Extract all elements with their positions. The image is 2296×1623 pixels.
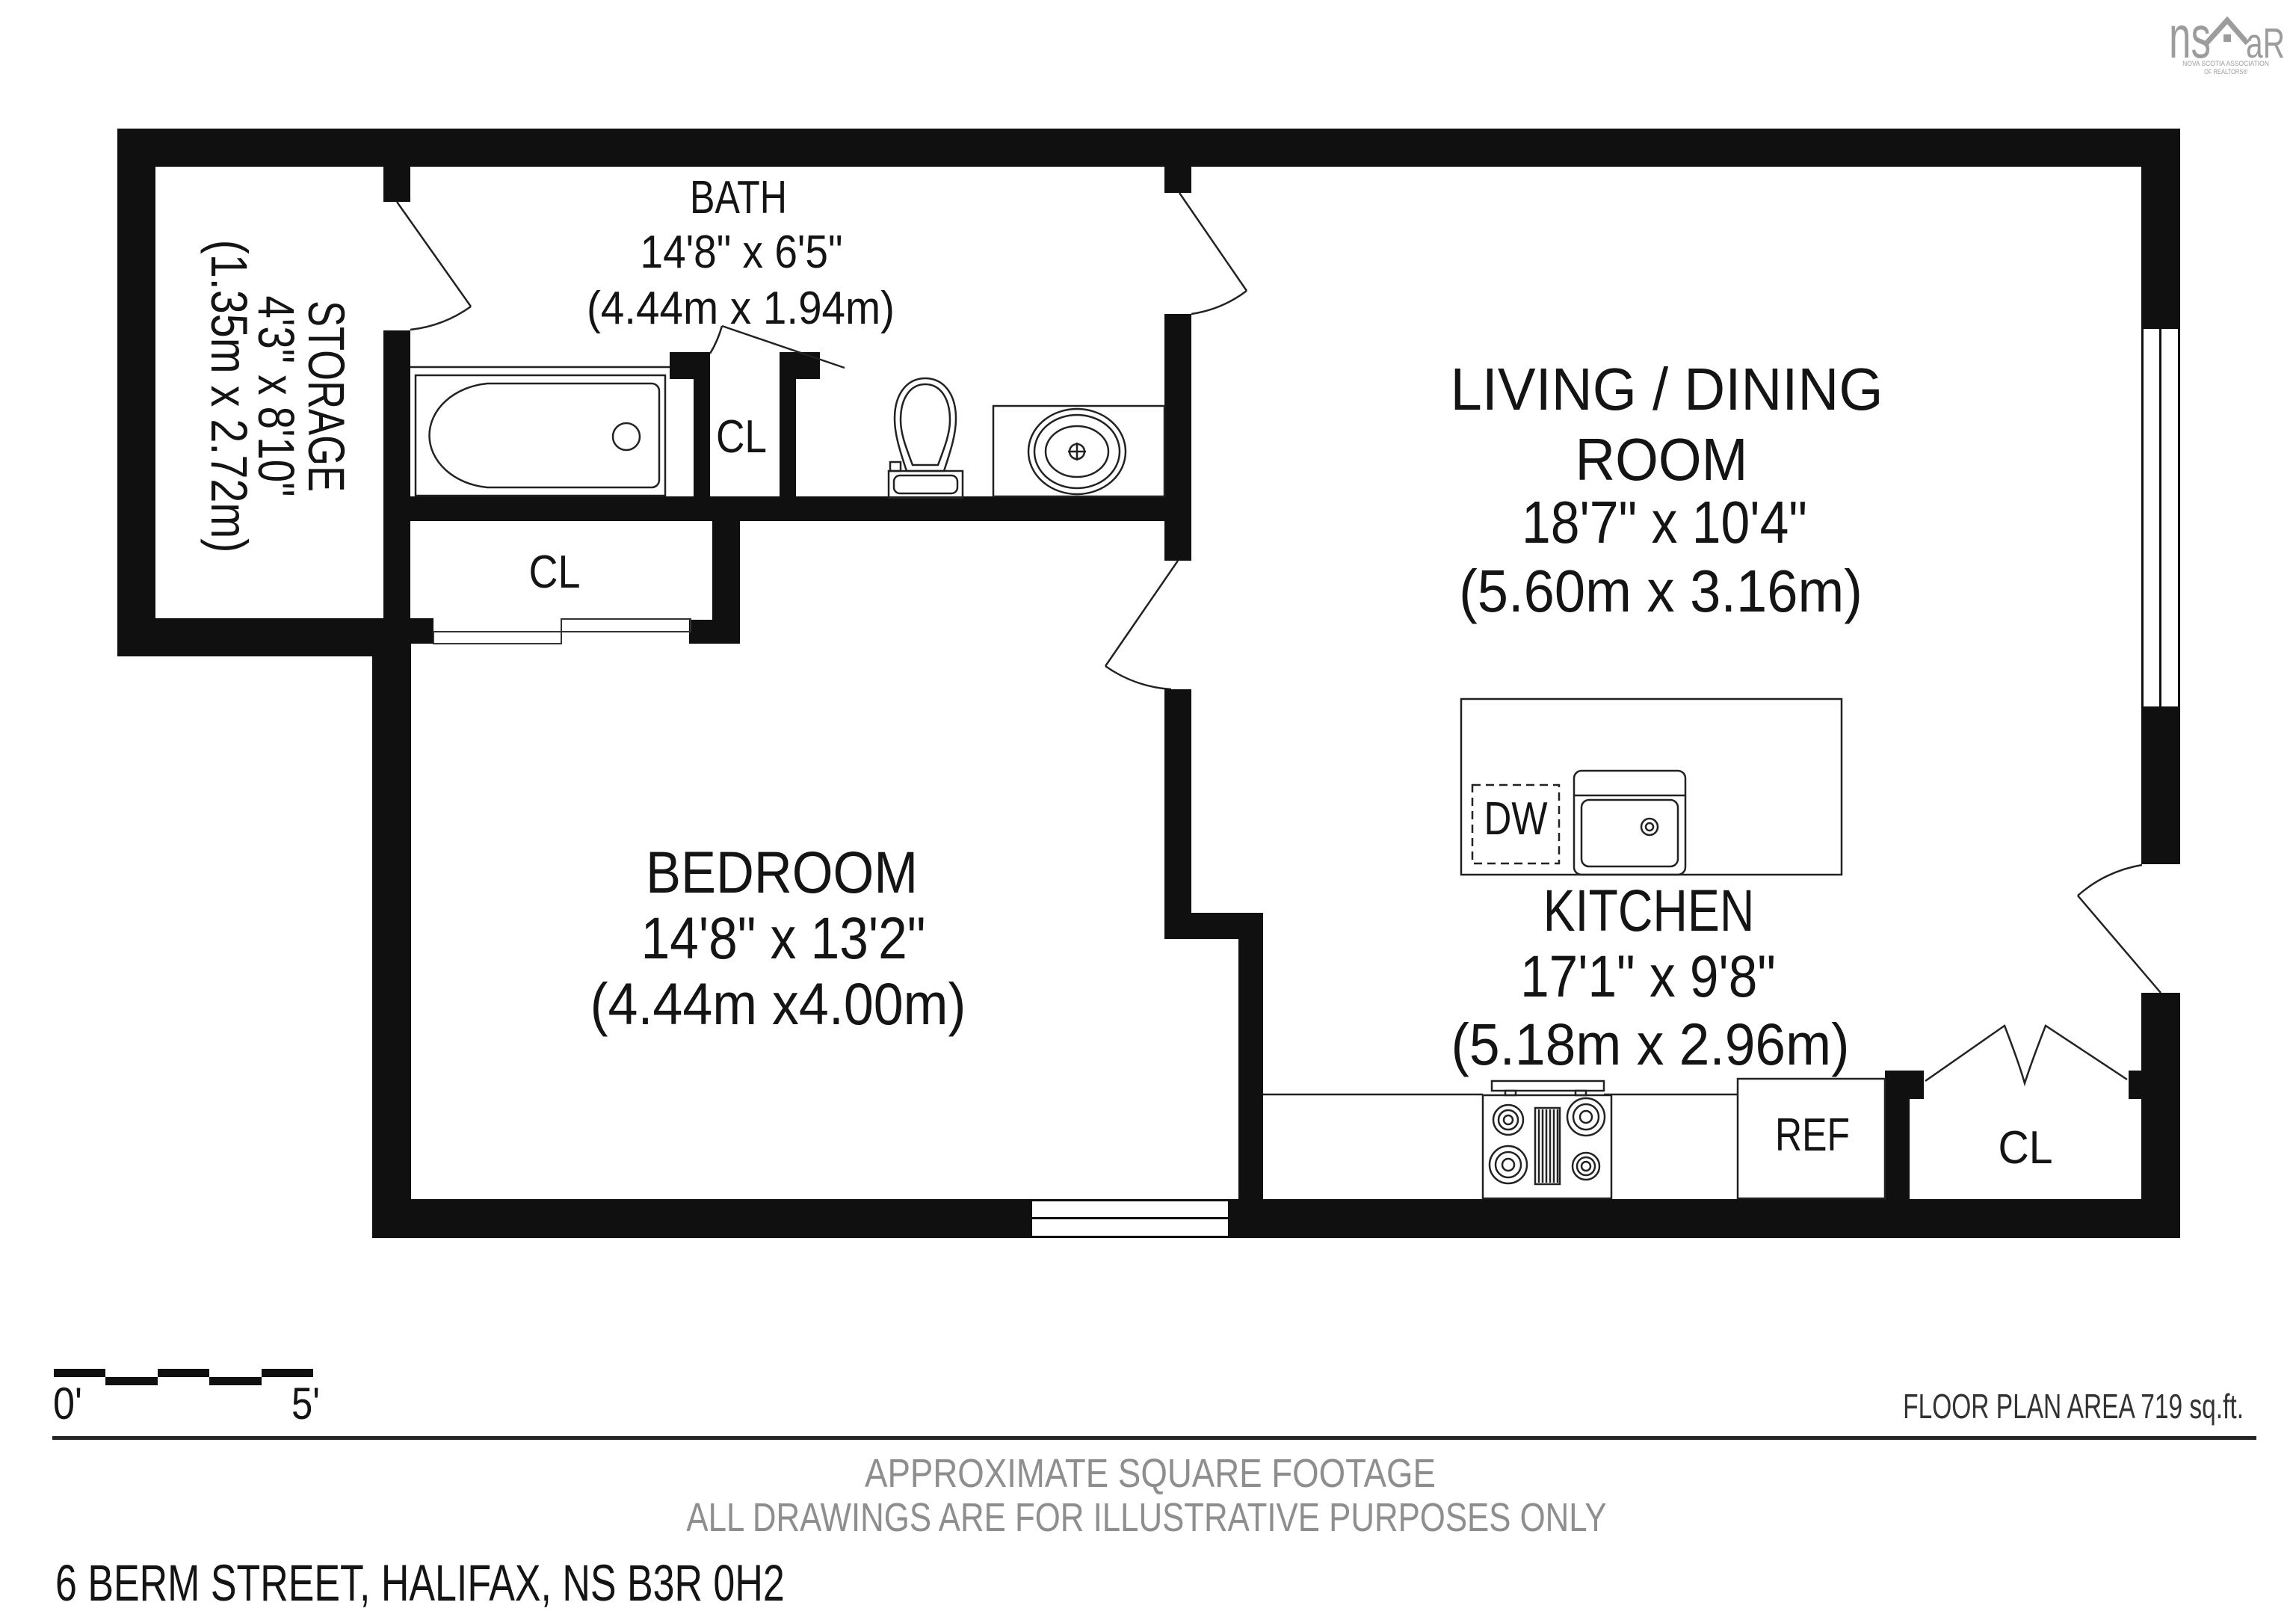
svg-text:5': 5'	[291, 1379, 320, 1429]
svg-text:(5.60m x 3.16m): (5.60m x 3.16m)	[1459, 558, 1863, 624]
svg-text:KITCHEN: KITCHEN	[1543, 878, 1755, 944]
svg-text:(4.44m x 1.94m): (4.44m x 1.94m)	[587, 282, 895, 334]
svg-text:CL: CL	[1999, 1121, 2053, 1174]
svg-text:ALL DRAWINGS ARE FOR ILLUSTRAT: ALL DRAWINGS ARE FOR ILLUSTRATIVE PURPOS…	[686, 1495, 1606, 1540]
svg-text:OF REALTORS®: OF REALTORS®	[2204, 67, 2247, 76]
svg-text:(4.44m x4.00m): (4.44m x4.00m)	[590, 971, 966, 1037]
svg-text:6 BERM STREET, HALIFAX, NS B3R: 6 BERM STREET, HALIFAX, NS B3R 0H2	[55, 1554, 785, 1612]
svg-text:ROOM: ROOM	[1576, 426, 1748, 493]
svg-text:(5.18m x 2.96m): (5.18m x 2.96m)	[1451, 1011, 1849, 1077]
svg-text:14'8" x 6'5": 14'8" x 6'5"	[641, 227, 843, 278]
svg-text:18'7" x 10'4": 18'7" x 10'4"	[1522, 488, 1807, 555]
svg-text:(1.35m x 2.72m): (1.35m x 2.72m)	[200, 240, 258, 553]
svg-text:BEDROOM: BEDROOM	[646, 839, 918, 905]
svg-text:NOVA SCOTIA ASSOCIATION: NOVA SCOTIA ASSOCIATION	[2182, 60, 2269, 68]
svg-text:CL: CL	[529, 546, 581, 598]
svg-text:LIVING / DINING: LIVING / DINING	[1450, 355, 1883, 422]
svg-text:STORAGE: STORAGE	[297, 301, 356, 492]
svg-text:CL: CL	[716, 411, 767, 463]
svg-text:17'1" x 9'8": 17'1" x 9'8"	[1520, 943, 1776, 1009]
svg-text:DW: DW	[1484, 793, 1548, 845]
svg-text:BATH: BATH	[690, 171, 787, 223]
svg-text:14'8" x 13'2": 14'8" x 13'2"	[641, 905, 926, 971]
svg-text:0': 0'	[53, 1379, 82, 1429]
svg-text:APPROXIMATE SQUARE FOOTAGE: APPROXIMATE SQUARE FOOTAGE	[865, 1450, 1436, 1495]
svg-text:REF: REF	[1775, 1109, 1850, 1160]
svg-text:FLOOR PLAN AREA 719 sq.ft.: FLOOR PLAN AREA 719 sq.ft.	[1903, 1388, 2244, 1426]
